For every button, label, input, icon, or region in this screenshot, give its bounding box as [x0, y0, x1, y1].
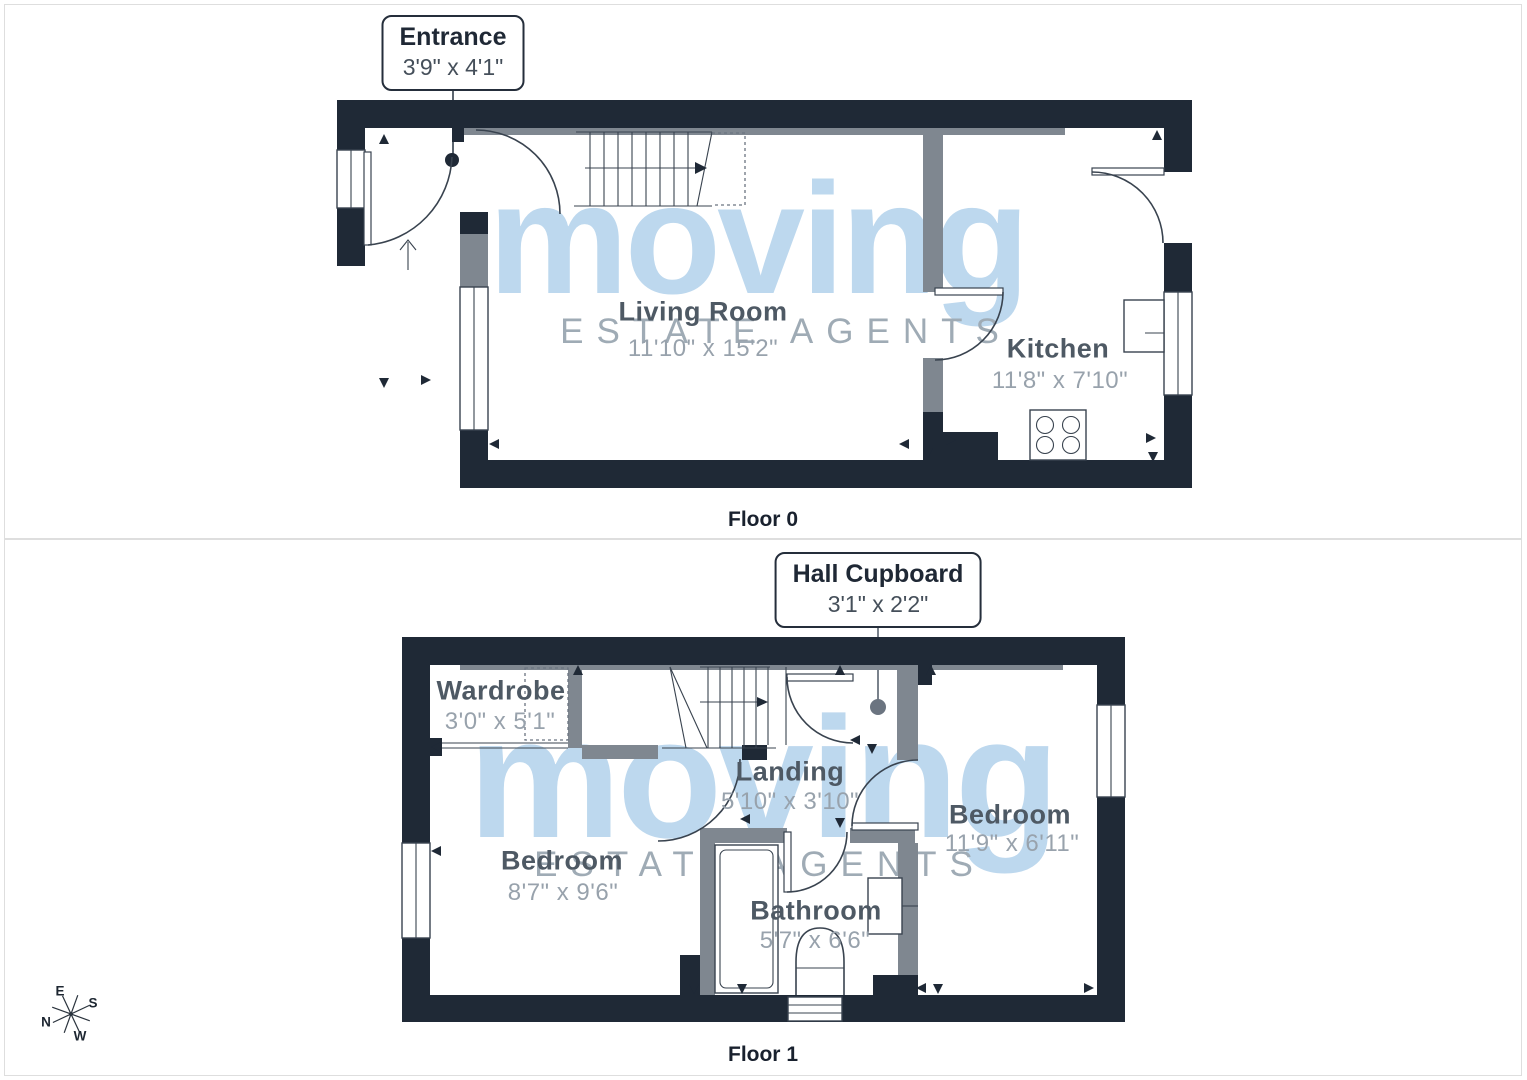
bathroom-dims: 5'7" x 6'6": [760, 927, 870, 955]
wardrobe-sliding-door: [442, 743, 568, 748]
living-room-door: [476, 130, 560, 214]
compass-north-label: N: [41, 1015, 51, 1030]
bathroom-door: [784, 832, 847, 892]
entrance-callout-title: Entrance: [400, 23, 507, 52]
compass-icon: [52, 995, 90, 1033]
landing-label: Landing: [736, 757, 844, 788]
kitchen-back-door: [1092, 168, 1164, 243]
stove-icon: [1030, 410, 1086, 460]
living-room-dims: 11'10" x 15'2": [628, 335, 778, 363]
sink-unit-icon: [1124, 300, 1164, 352]
entrance-callout-dims: 3'9" x 4'1": [400, 54, 507, 81]
compass-east-label: E: [55, 984, 64, 999]
bedroom1-label: Bedroom: [501, 846, 623, 877]
floor0-plan: [337, 88, 1192, 488]
hall-cupboard-callout: Hall Cupboard 3'1" x 2'2": [775, 552, 982, 628]
kitchen-door: [935, 288, 1003, 360]
living-room-label: Living Room: [619, 297, 788, 328]
floorplan-page: moving ESTATE AGENTS moving ESTATE AGENT…: [0, 0, 1527, 1080]
front-door: [364, 152, 452, 245]
bedroom1-dims: 8'7" x 9'6": [508, 879, 618, 907]
wardrobe-label: Wardrobe: [436, 676, 565, 707]
landing-dims: 5'10" x 3'10": [721, 788, 859, 816]
floor0-stairs-icon: [574, 132, 745, 206]
hall-cupboard-callout-title: Hall Cupboard: [793, 560, 964, 589]
entrance-arrow-icon: [400, 240, 416, 270]
stairs-arrow-icon: [757, 697, 768, 707]
hall-cupboard-callout-dims: 3'1" x 2'2": [793, 591, 964, 618]
compass-west-label: W: [74, 1029, 87, 1044]
floor0-caption: Floor 0: [728, 508, 798, 532]
bedroom2-dims: 11'9" x 6'11": [945, 830, 1080, 858]
kitchen-dims: 11'8" x 7'10": [992, 367, 1128, 395]
compass-south-label: S: [88, 996, 97, 1011]
kitchen-label: Kitchen: [1007, 334, 1110, 365]
entrance-callout: Entrance 3'9" x 4'1": [382, 15, 525, 91]
floor0-gray-walls: [460, 126, 1065, 412]
floor1-caption: Floor 1: [728, 1043, 798, 1067]
bedroom2-label: Bedroom: [949, 800, 1071, 831]
bedroom2-door: [852, 760, 918, 830]
floor1-stairs-icon: [662, 667, 786, 748]
wardrobe-dims: 3'0" x 5'1": [445, 708, 555, 736]
bathroom-label: Bathroom: [750, 896, 882, 927]
hall-cupboard-door: [787, 674, 853, 743]
